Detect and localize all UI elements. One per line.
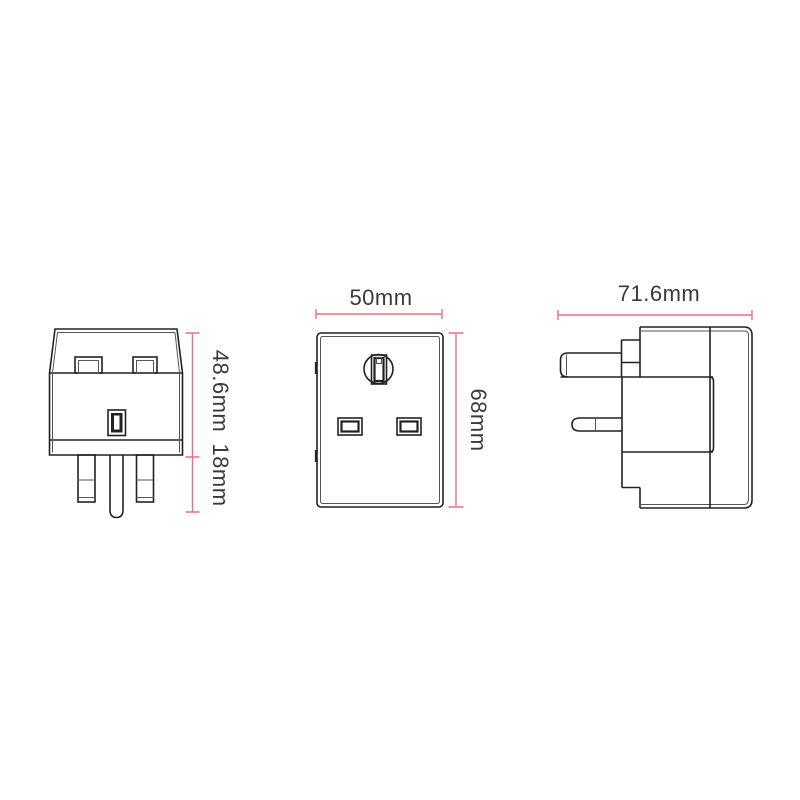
side-view-body-outline [640,327,752,508]
dimension-label-pin-length: 18mm [207,443,233,506]
front-view-drawing [316,309,464,507]
top-view-drawing [50,329,200,518]
dimension-label-body-height: 48.6mm [207,350,233,432]
top-view-fuse-slot [108,410,126,436]
technical-drawing-page: 48.6mm 18mm 50mm 68mm 71.6mm [0,0,800,800]
top-view-left-boss [75,357,102,373]
side-view-inner-edge [640,331,749,505]
side-view-drawing [558,310,752,508]
dimension-label-side-depth: 71.6mm [618,281,700,307]
front-view-right-socket-slot [397,418,421,435]
side-view-line-pin [572,418,622,431]
front-view-earth-socket [364,355,393,385]
front-view-body-outline [317,333,443,507]
front-view-left-socket-slot [338,418,362,435]
plug-adapter-drawing [0,0,800,800]
front-view-dimension-lines [316,309,464,507]
top-view-edge-highlight [53,333,180,453]
side-view-earth-pin [561,353,622,377]
top-view-left-pin [78,455,95,502]
dimension-label-front-height: 68mm [465,388,491,451]
top-view-dimension-lines [186,333,200,512]
dimension-label-front-width: 50mm [349,285,412,311]
side-view-socket-block [561,377,714,488]
top-view-center-pin [110,455,123,518]
top-view-right-boss [133,357,157,373]
top-view-right-pin [137,455,154,502]
side-view-pin-boss [622,340,641,377]
side-view-dimension-lines [558,310,752,320]
